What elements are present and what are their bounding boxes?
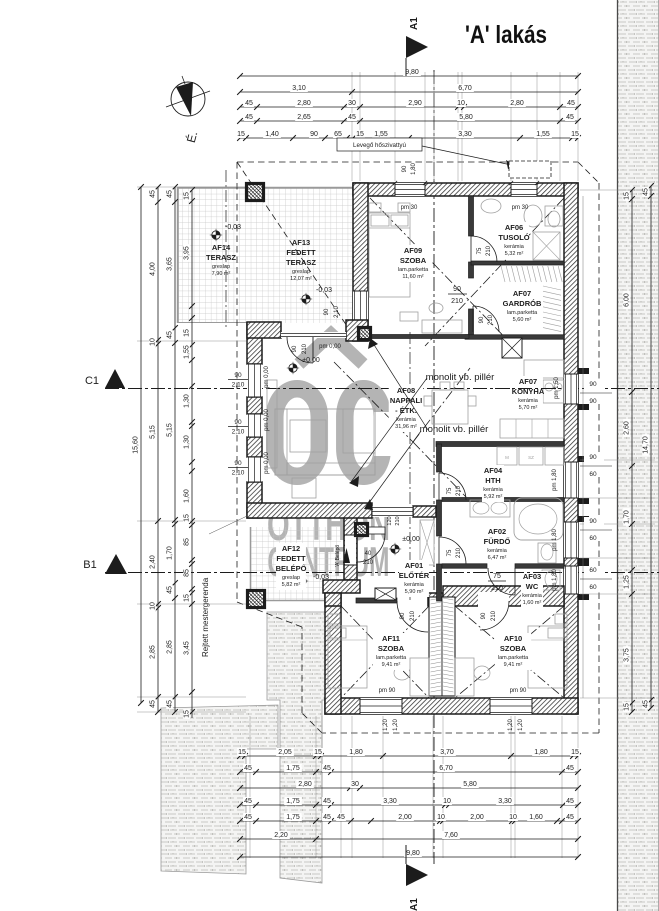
- svg-text:90: 90: [481, 612, 487, 619]
- svg-text:90: 90: [324, 308, 330, 315]
- svg-text:15: 15: [623, 703, 630, 711]
- svg-text:2,10: 2,10: [334, 306, 340, 318]
- svg-text:210: 210: [395, 516, 401, 525]
- svg-text:ELŐTÉR: ELŐTÉR: [399, 571, 430, 580]
- svg-text:210: 210: [456, 547, 462, 558]
- svg-text:3,10: 3,10: [292, 85, 306, 92]
- svg-text:9,80: 9,80: [406, 850, 420, 857]
- svg-text:3,45: 3,45: [183, 641, 190, 655]
- svg-text:2,40: 2,40: [149, 555, 156, 569]
- svg-text:HTH: HTH: [485, 476, 500, 485]
- svg-text:11,60 m²: 11,60 m²: [402, 274, 423, 280]
- svg-text:15: 15: [314, 749, 322, 756]
- svg-text:1,55: 1,55: [183, 345, 190, 359]
- svg-text:1,30: 1,30: [183, 394, 190, 408]
- svg-text:AF06: AF06: [505, 223, 523, 232]
- svg-text:210: 210: [363, 560, 374, 566]
- svg-text:7,90 m²: 7,90 m²: [212, 271, 231, 277]
- svg-text:90: 90: [589, 398, 597, 405]
- svg-text:lam.parketta: lam.parketta: [507, 310, 538, 316]
- svg-text:kerámia: kerámia: [522, 593, 543, 599]
- svg-text:3,30: 3,30: [458, 131, 472, 138]
- svg-text:45: 45: [323, 798, 331, 805]
- svg-text:AF04: AF04: [484, 466, 503, 475]
- svg-text:1,20: 1,20: [393, 719, 399, 731]
- svg-text:10: 10: [437, 814, 445, 821]
- svg-text:lam.parketta: lam.parketta: [376, 655, 407, 661]
- svg-text:AF01: AF01: [405, 561, 423, 570]
- svg-text:AF13: AF13: [292, 238, 310, 247]
- svg-text:B1: B1: [83, 559, 96, 571]
- svg-text:pm 1,80: pm 1,80: [552, 529, 558, 551]
- svg-text:45: 45: [245, 100, 253, 107]
- svg-text:6,70: 6,70: [439, 765, 453, 772]
- svg-text:75: 75: [493, 573, 501, 580]
- svg-text:210: 210: [488, 314, 494, 325]
- svg-text:1,20: 1,20: [518, 719, 524, 731]
- svg-text:AF02: AF02: [488, 527, 506, 536]
- svg-text:45: 45: [149, 190, 156, 198]
- svg-text:3,30: 3,30: [383, 798, 397, 805]
- svg-text:45: 45: [566, 114, 574, 121]
- svg-text:2,00: 2,00: [470, 814, 484, 821]
- svg-text:'A' lakás: 'A' lakás: [465, 21, 547, 49]
- svg-text:10: 10: [443, 798, 451, 805]
- svg-text:1,80: 1,80: [349, 749, 363, 756]
- svg-text:3,65: 3,65: [166, 257, 173, 271]
- svg-text:FÜRDŐ: FÜRDŐ: [484, 537, 511, 546]
- svg-text:pm 0,00: pm 0,00: [264, 452, 270, 474]
- svg-text:9,41 m²: 9,41 m²: [504, 662, 523, 668]
- svg-text:210: 210: [456, 485, 462, 496]
- svg-text:±0,00: ±0,00: [402, 536, 420, 543]
- svg-text:31,96 m²: 31,96 m²: [395, 424, 417, 430]
- svg-text:45: 45: [166, 331, 173, 339]
- svg-text:pm 0,00: pm 0,00: [264, 409, 270, 431]
- svg-text:AF09: AF09: [404, 246, 422, 255]
- svg-text:45: 45: [567, 100, 575, 107]
- svg-text:AF03: AF03: [523, 572, 541, 581]
- svg-text:1,55: 1,55: [536, 131, 550, 138]
- svg-text:1,20: 1,20: [508, 719, 514, 731]
- svg-text:2,10: 2,10: [232, 382, 245, 389]
- svg-text:kerámia: kerámia: [404, 582, 425, 588]
- svg-text:pm 90: pm 90: [510, 688, 527, 694]
- svg-text:10: 10: [149, 338, 156, 346]
- svg-text:5,80: 5,80: [459, 114, 473, 121]
- svg-text:210: 210: [451, 298, 463, 305]
- svg-text:NAPPALI: NAPPALI: [390, 396, 422, 405]
- svg-text:kerámia: kerámia: [483, 487, 504, 493]
- svg-text:15: 15: [183, 710, 190, 718]
- svg-text:-0,03: -0,03: [313, 574, 329, 581]
- svg-text:2,10: 2,10: [232, 470, 245, 477]
- svg-text:15: 15: [183, 514, 190, 522]
- svg-text:FEDETT: FEDETT: [276, 554, 306, 563]
- svg-text:lam.parketta: lam.parketta: [498, 655, 529, 661]
- svg-text:9,41 m²: 9,41 m²: [382, 662, 401, 668]
- svg-text:75: 75: [477, 247, 483, 254]
- svg-text:1,20: 1,20: [383, 719, 389, 731]
- svg-text:2,90: 2,90: [408, 100, 422, 107]
- svg-text:pm 30: pm 30: [512, 205, 529, 211]
- svg-text:15,60: 15,60: [132, 436, 139, 454]
- svg-text:210: 210: [486, 245, 492, 256]
- svg-text:2,00: 2,00: [398, 814, 412, 821]
- svg-text:1,25: 1,25: [623, 575, 630, 589]
- svg-text:pm 0,00: pm 0,00: [319, 344, 341, 350]
- svg-text:12,07 m²: 12,07 m²: [290, 276, 312, 282]
- svg-text:90: 90: [479, 316, 485, 323]
- svg-text:SZOBA: SZOBA: [500, 644, 527, 653]
- svg-text:1,60: 1,60: [529, 814, 543, 821]
- svg-text:15: 15: [571, 131, 579, 138]
- svg-text:pm 1,80: pm 1,80: [552, 569, 558, 591]
- svg-text:1,55: 1,55: [374, 131, 388, 138]
- svg-text:9,80: 9,80: [405, 69, 419, 76]
- svg-text:45: 45: [166, 586, 173, 594]
- svg-text:5,70 m²: 5,70 m²: [519, 405, 538, 411]
- svg-text:2,65: 2,65: [297, 114, 311, 121]
- svg-text:5,15: 5,15: [149, 425, 156, 439]
- svg-text:15: 15: [183, 192, 190, 200]
- svg-text:WC: WC: [526, 582, 539, 591]
- svg-text:SZOBA: SZOBA: [378, 644, 405, 653]
- svg-text:60: 60: [589, 584, 597, 591]
- svg-text:Levegő hőszivattyú: Levegő hőszivattyú: [353, 142, 407, 149]
- svg-text:15: 15: [183, 594, 190, 602]
- svg-text:5,32 m²: 5,32 m²: [505, 251, 524, 257]
- svg-text:45: 45: [348, 114, 356, 121]
- svg-text:10: 10: [457, 100, 465, 107]
- svg-text:lam.parketta: lam.parketta: [398, 267, 429, 273]
- svg-text:1,60 m²: 1,60 m²: [523, 600, 542, 606]
- svg-text:kerámia: kerámia: [518, 398, 539, 404]
- svg-text:45: 45: [244, 814, 252, 821]
- svg-text:5,60 m²: 5,60 m²: [513, 317, 532, 323]
- svg-text:210: 210: [491, 585, 503, 592]
- svg-text:1,70: 1,70: [623, 510, 630, 524]
- svg-text:15: 15: [571, 749, 579, 756]
- svg-text:1,80: 1,80: [411, 163, 417, 175]
- svg-text:90: 90: [402, 165, 408, 172]
- svg-text:3,70: 3,70: [440, 749, 454, 756]
- svg-text:45: 45: [566, 814, 574, 821]
- svg-text:2,85: 2,85: [149, 645, 156, 659]
- svg-text:5,92 m²: 5,92 m²: [484, 494, 503, 500]
- svg-text:FEDETT: FEDETT: [286, 248, 316, 257]
- svg-text:AF12: AF12: [282, 544, 300, 553]
- svg-text:1,75: 1,75: [286, 765, 300, 772]
- svg-text:90: 90: [234, 460, 242, 467]
- svg-text:210: 210: [491, 610, 497, 621]
- svg-text:15: 15: [356, 131, 364, 138]
- svg-text:10: 10: [149, 602, 156, 610]
- svg-text:120: 120: [387, 516, 393, 525]
- svg-text:90: 90: [589, 518, 597, 525]
- svg-text:45: 45: [166, 700, 173, 708]
- svg-text:-0,03: -0,03: [225, 224, 241, 231]
- svg-text:30: 30: [351, 781, 359, 788]
- svg-text:1,30: 1,30: [183, 435, 190, 449]
- svg-text:1,40: 1,40: [265, 131, 279, 138]
- svg-text:210: 210: [302, 343, 308, 354]
- svg-text:greslap: greslap: [212, 264, 230, 270]
- svg-text:5,80: 5,80: [463, 781, 477, 788]
- svg-text:2,85: 2,85: [166, 640, 173, 654]
- svg-text:6,47 m²: 6,47 m²: [488, 555, 507, 561]
- svg-text:7,60: 7,60: [444, 832, 458, 839]
- svg-text:BELÉPŐ: BELÉPŐ: [276, 564, 307, 573]
- svg-text:±0,00: ±0,00: [302, 357, 320, 364]
- svg-text:6,70: 6,70: [458, 85, 472, 92]
- svg-text:5,82 m²: 5,82 m²: [282, 582, 301, 588]
- svg-text:SZ: SZ: [528, 455, 534, 460]
- svg-text:90: 90: [292, 345, 298, 352]
- svg-text:2,05: 2,05: [278, 749, 292, 756]
- svg-text:AF14: AF14: [212, 243, 231, 252]
- svg-text:90: 90: [234, 419, 242, 426]
- svg-text:kerámia: kerámia: [396, 417, 417, 423]
- svg-text:AF07: AF07: [519, 377, 537, 386]
- svg-text:A1: A1: [409, 898, 420, 911]
- svg-text:2,60: 2,60: [623, 421, 630, 435]
- svg-text:kerámia: kerámia: [504, 244, 525, 250]
- svg-text:45: 45: [244, 798, 252, 805]
- svg-text:90: 90: [589, 454, 597, 461]
- svg-text:45: 45: [566, 765, 574, 772]
- svg-text:pm 30: pm 30: [401, 205, 418, 211]
- svg-text:45: 45: [337, 814, 345, 821]
- svg-text:AF10: AF10: [504, 634, 522, 643]
- svg-text:2,80: 2,80: [297, 100, 311, 107]
- svg-text:90: 90: [589, 381, 597, 388]
- svg-text:pm 90: pm 90: [379, 688, 396, 694]
- svg-text:2,80: 2,80: [298, 781, 312, 788]
- svg-text:45: 45: [642, 700, 649, 708]
- svg-text:5,15: 5,15: [166, 423, 173, 437]
- svg-text:monolit vb. pillér: monolit vb. pillér: [426, 372, 495, 383]
- svg-text:45: 45: [566, 798, 574, 805]
- svg-text:90: 90: [234, 372, 242, 379]
- svg-text:kerámia: kerámia: [487, 548, 508, 554]
- svg-text:210: 210: [410, 610, 416, 621]
- svg-text:30: 30: [348, 100, 356, 107]
- svg-text:45: 45: [323, 765, 331, 772]
- svg-text:2,80: 2,80: [510, 100, 524, 107]
- svg-text:greslap: greslap: [282, 575, 300, 581]
- svg-text:15: 15: [238, 749, 246, 756]
- svg-text:90: 90: [453, 286, 461, 293]
- svg-text:C1: C1: [85, 375, 99, 387]
- svg-text:1,80: 1,80: [534, 749, 548, 756]
- svg-text:60: 60: [589, 535, 597, 542]
- svg-text:SZOBA: SZOBA: [400, 256, 427, 265]
- svg-text:60: 60: [589, 471, 597, 478]
- svg-text:3,30: 3,30: [498, 798, 512, 805]
- svg-text:3,95: 3,95: [183, 246, 190, 260]
- svg-text:5,90 m²: 5,90 m²: [405, 589, 424, 595]
- svg-text:Rejtett mestergerenda: Rejtett mestergerenda: [201, 577, 210, 657]
- svg-text:90: 90: [400, 612, 406, 619]
- svg-text:85: 85: [183, 569, 190, 577]
- svg-text:2,20: 2,20: [274, 832, 288, 839]
- svg-text:90: 90: [310, 131, 318, 138]
- svg-text:1,60: 1,60: [183, 489, 190, 503]
- svg-text:45: 45: [244, 765, 252, 772]
- svg-text:45: 45: [245, 114, 253, 121]
- svg-text:4,00: 4,00: [149, 262, 156, 276]
- svg-text:-0,03: -0,03: [316, 287, 332, 294]
- svg-text:10: 10: [509, 814, 517, 821]
- svg-text:85: 85: [183, 538, 190, 546]
- svg-text:45: 45: [642, 188, 649, 196]
- svg-text:greslap: greslap: [292, 269, 310, 275]
- svg-text:TERASZ: TERASZ: [206, 253, 236, 262]
- svg-text:40: 40: [365, 551, 372, 557]
- svg-text:GARDRÓB: GARDRÓB: [503, 299, 542, 308]
- svg-text:75: 75: [447, 549, 453, 556]
- svg-text:monolit vb. pillér: monolit vb. pillér: [420, 424, 489, 435]
- svg-text:45: 45: [149, 700, 156, 708]
- svg-text:15: 15: [237, 131, 245, 138]
- svg-text:45: 45: [166, 190, 173, 198]
- svg-text:65: 65: [334, 131, 342, 138]
- svg-text:6,00: 6,00: [623, 293, 630, 307]
- svg-text:2,10: 2,10: [232, 429, 245, 436]
- svg-text:1,75: 1,75: [286, 814, 300, 821]
- svg-text:pm 1,80: pm 1,80: [552, 469, 558, 491]
- svg-text:pm 1,50: pm 1,50: [554, 377, 560, 399]
- svg-text:TUSOLÓ: TUSOLÓ: [498, 233, 529, 242]
- svg-text:45: 45: [323, 814, 331, 821]
- svg-text:M: M: [505, 455, 509, 460]
- svg-text:AF07: AF07: [513, 289, 531, 298]
- svg-text:15: 15: [623, 192, 630, 200]
- svg-text:75: 75: [447, 487, 453, 494]
- svg-text:1,70: 1,70: [166, 546, 173, 560]
- svg-text:14,70: 14,70: [642, 436, 649, 454]
- svg-text:60: 60: [589, 567, 597, 574]
- svg-text:pm 0,00: pm 0,00: [264, 366, 270, 388]
- svg-text:AF08: AF08: [397, 386, 415, 395]
- svg-text:1,75: 1,75: [286, 798, 300, 805]
- svg-text:A1: A1: [409, 17, 420, 30]
- svg-text:TERASZ: TERASZ: [286, 258, 316, 267]
- svg-text:15: 15: [183, 329, 190, 337]
- svg-text:3,75: 3,75: [623, 648, 630, 662]
- svg-text:'A' Belépő: 'A' Belépő: [335, 545, 341, 567]
- svg-text:AF11: AF11: [382, 634, 400, 643]
